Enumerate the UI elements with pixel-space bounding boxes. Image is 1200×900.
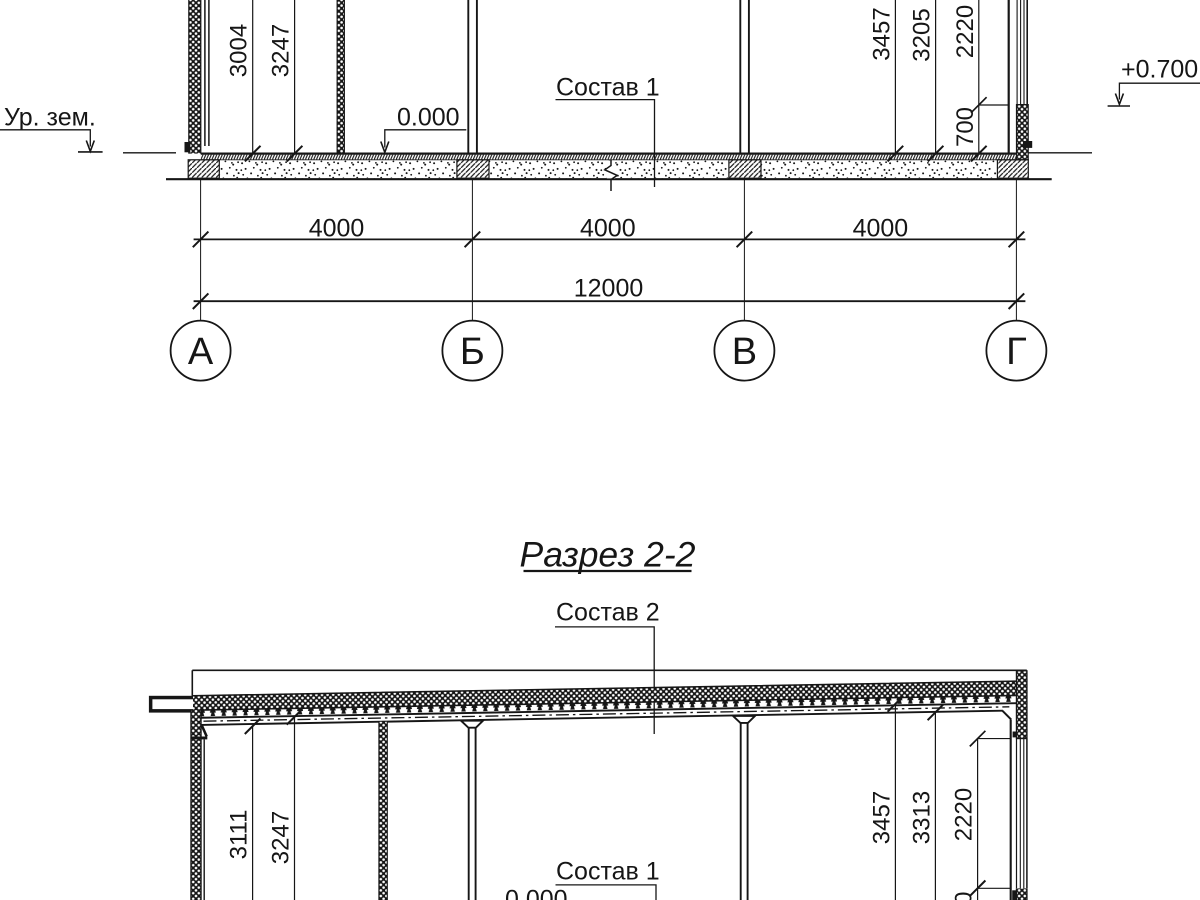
svg-text:0.000: 0.000 xyxy=(505,886,568,900)
svg-text:3004: 3004 xyxy=(226,24,253,77)
svg-text:3313: 3313 xyxy=(908,791,935,844)
svg-text:3111: 3111 xyxy=(226,810,253,860)
svg-text:3205: 3205 xyxy=(909,8,936,61)
svg-text:2220: 2220 xyxy=(952,5,979,58)
svg-text:Разрез 2-2: Разрез 2-2 xyxy=(520,535,696,575)
svg-text:3247: 3247 xyxy=(268,24,295,77)
svg-text:700: 700 xyxy=(952,107,979,147)
svg-text:12000: 12000 xyxy=(574,275,644,303)
svg-text:4000: 4000 xyxy=(580,215,636,243)
svg-text:Ур. зем.: Ур. зем. xyxy=(4,104,96,132)
svg-text:3457: 3457 xyxy=(868,7,895,60)
svg-text:3457: 3457 xyxy=(868,791,895,844)
svg-text:3247: 3247 xyxy=(268,811,295,864)
svg-text:Состав 1: Состав 1 xyxy=(556,857,660,885)
svg-text:700: 700 xyxy=(951,891,978,900)
svg-text:Г: Г xyxy=(1006,331,1027,373)
svg-text:0.000: 0.000 xyxy=(397,104,460,132)
svg-text:А: А xyxy=(188,331,214,373)
svg-text:4000: 4000 xyxy=(309,215,365,243)
svg-text:В: В xyxy=(732,331,757,373)
svg-text:Б: Б xyxy=(460,331,485,373)
svg-text:Состав 1: Состав 1 xyxy=(556,74,660,102)
svg-text:+0.700: +0.700 xyxy=(1121,56,1198,84)
svg-text:Состав 2: Состав 2 xyxy=(556,598,660,626)
svg-text:2220: 2220 xyxy=(951,788,978,841)
svg-text:4000: 4000 xyxy=(853,215,909,243)
